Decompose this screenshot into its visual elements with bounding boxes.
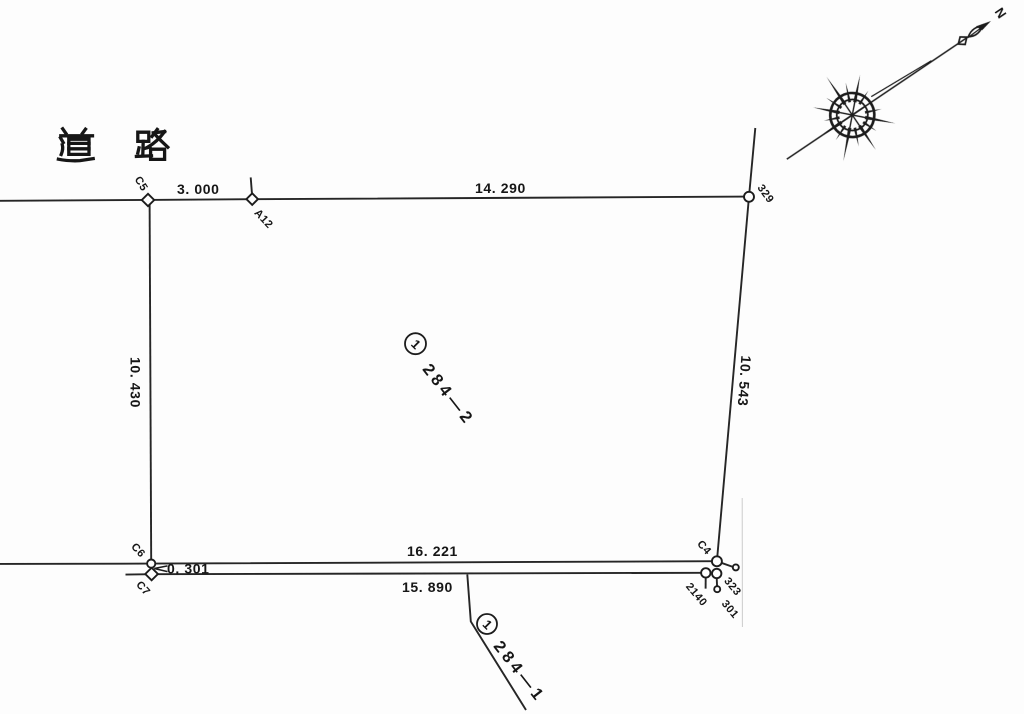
svg-text:3. 000: 3. 000 bbox=[177, 181, 220, 197]
svg-text:14. 290: 14. 290 bbox=[475, 180, 526, 196]
svg-text:16. 221: 16. 221 bbox=[407, 543, 458, 559]
svg-text:10. 430: 10. 430 bbox=[128, 357, 144, 408]
svg-text:15. 890: 15. 890 bbox=[402, 579, 453, 595]
svg-text:0. 301: 0. 301 bbox=[167, 561, 210, 577]
